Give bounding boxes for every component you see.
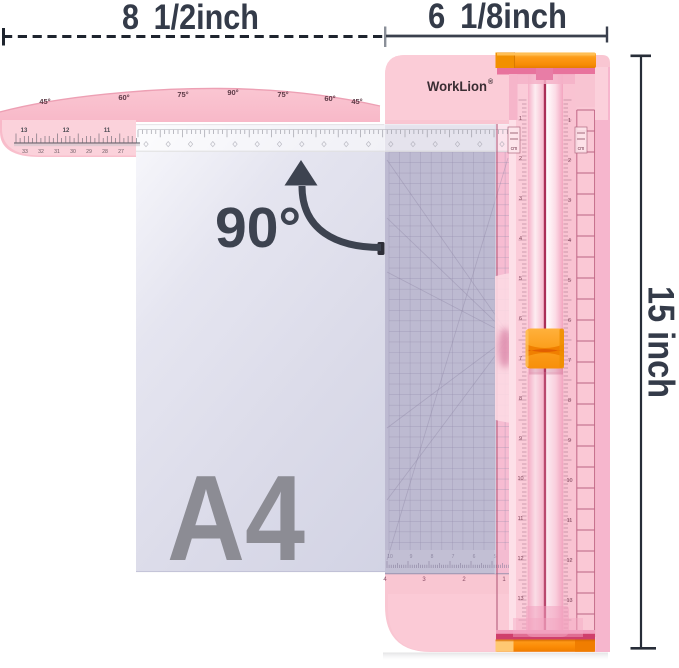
svg-text:27: 27 — [118, 149, 124, 155]
svg-text:11: 11 — [104, 128, 111, 134]
svg-text:8: 8 — [519, 396, 522, 402]
svg-text:75°: 75° — [177, 90, 188, 99]
svg-text:45°: 45° — [351, 97, 362, 106]
svg-text:11: 11 — [518, 516, 524, 522]
svg-text:11: 11 — [567, 518, 573, 524]
svg-text:13: 13 — [566, 598, 572, 604]
svg-text:60°: 60° — [118, 93, 129, 102]
svg-text:6: 6 — [519, 316, 522, 322]
svg-text:cm: cm — [578, 146, 585, 152]
svg-text:A4: A4 — [167, 450, 305, 586]
svg-text:9: 9 — [410, 554, 413, 560]
svg-text:1: 1 — [519, 116, 522, 122]
svg-text:9: 9 — [568, 438, 571, 444]
svg-text:9: 9 — [519, 436, 522, 442]
svg-text:1: 1 — [568, 118, 571, 124]
svg-text:13: 13 — [517, 596, 523, 602]
svg-text:6 1/8inch: 6 1/8inch — [428, 0, 567, 36]
svg-text:10: 10 — [566, 478, 572, 484]
svg-text:5: 5 — [519, 276, 522, 282]
svg-text:28: 28 — [102, 149, 108, 155]
svg-text:6: 6 — [473, 554, 476, 560]
svg-text:90°: 90° — [215, 196, 301, 260]
svg-text:12: 12 — [517, 556, 523, 562]
svg-text:15 inch: 15 inch — [641, 286, 679, 398]
svg-text:12: 12 — [63, 128, 70, 134]
svg-text:4: 4 — [568, 238, 571, 244]
svg-text:10: 10 — [387, 554, 393, 560]
svg-text:3: 3 — [519, 196, 522, 202]
svg-text:13: 13 — [21, 128, 28, 134]
svg-text:8: 8 — [568, 398, 571, 404]
svg-text:2: 2 — [568, 158, 571, 164]
svg-text:45°: 45° — [39, 97, 50, 106]
svg-text:7: 7 — [452, 554, 455, 560]
svg-text:WorkLion: WorkLion — [427, 79, 487, 94]
svg-text:33: 33 — [22, 149, 28, 155]
svg-text:8: 8 — [431, 554, 434, 560]
svg-text:cm: cm — [511, 146, 518, 152]
svg-text:90°: 90° — [227, 88, 238, 97]
svg-text:60°: 60° — [324, 94, 335, 103]
svg-text:2: 2 — [519, 156, 522, 162]
svg-text:32: 32 — [38, 149, 44, 155]
svg-text:31: 31 — [54, 149, 60, 155]
svg-text:29: 29 — [86, 149, 92, 155]
svg-text:3: 3 — [568, 198, 571, 204]
svg-text:5: 5 — [568, 278, 571, 284]
svg-text:7: 7 — [519, 356, 522, 362]
svg-text:7: 7 — [568, 358, 571, 364]
svg-text:6: 6 — [568, 318, 571, 324]
svg-text:10: 10 — [517, 476, 523, 482]
svg-text:30: 30 — [70, 149, 76, 155]
svg-text:®: ® — [488, 78, 494, 86]
svg-text:12: 12 — [566, 558, 572, 564]
svg-text:75°: 75° — [277, 90, 288, 99]
svg-text:8 1/2inch: 8 1/2inch — [122, 0, 259, 37]
svg-text:4: 4 — [519, 236, 522, 242]
